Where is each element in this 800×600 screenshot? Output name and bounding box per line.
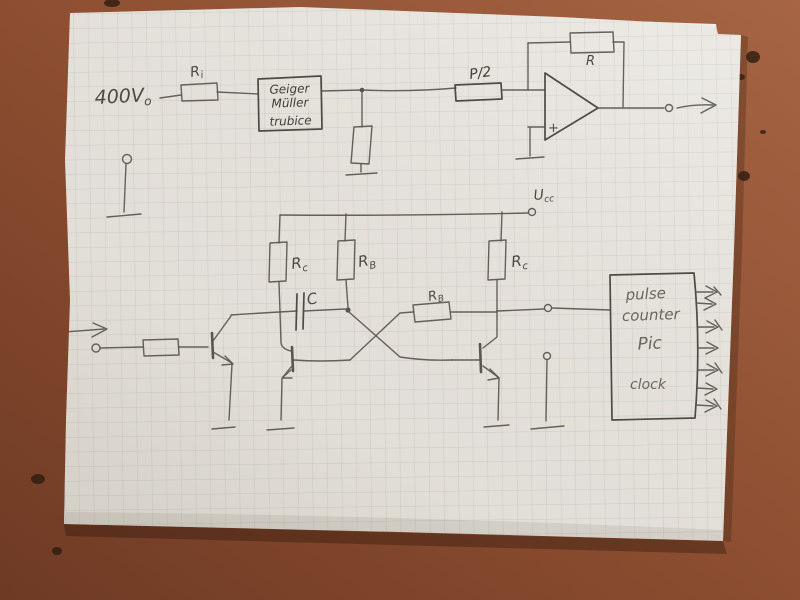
p2-resistor-label: P/2 <box>468 64 492 83</box>
counter-label-line2: counter <box>622 305 681 325</box>
wire <box>501 212 502 241</box>
wire <box>546 360 547 421</box>
wire <box>279 282 280 312</box>
counter-label-line1: pulse <box>624 284 666 304</box>
opamp-plus-label: + <box>548 121 559 136</box>
feedback-resistor-label: R <box>586 54 595 69</box>
wire <box>100 347 143 348</box>
counter-label-line3: Pic <box>637 333 663 354</box>
gm-tube-box-label: Geiger Müller trubice <box>268 81 312 128</box>
gm-label-line1: Geiger <box>269 81 310 96</box>
wire <box>528 42 570 43</box>
transistor-bar <box>480 344 481 372</box>
wire <box>345 214 346 241</box>
wire <box>321 90 362 91</box>
gm-label-line2: Müller <box>271 95 309 110</box>
circuit-sketch-photo: 400Vo Ri Geiger Müller trubice P/2 <box>0 0 800 600</box>
transistor-bar <box>212 333 213 358</box>
wire <box>498 378 499 420</box>
photo-of-circuit-sketch: 400Vo Ri Geiger Müller trubice P/2 <box>0 0 800 600</box>
capacitor-plate <box>296 294 297 330</box>
counter-label-line4: clock <box>630 377 667 393</box>
wire <box>279 215 280 243</box>
gm-label-line3: trubice <box>269 113 312 128</box>
transistor-bar <box>292 347 293 371</box>
wire <box>281 379 282 420</box>
